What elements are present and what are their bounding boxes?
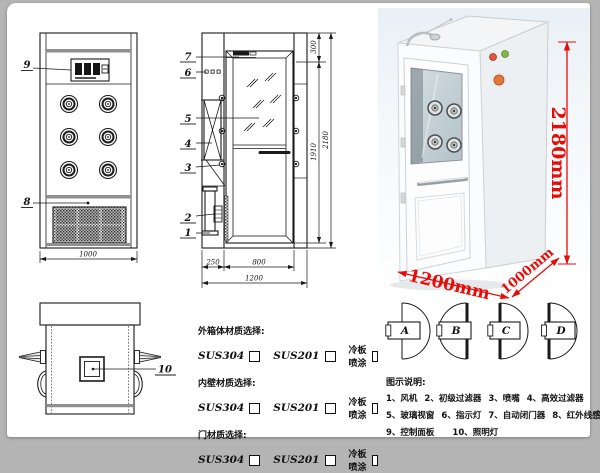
door-config-letter: A [400, 325, 409, 337]
door-hinge [401, 193, 405, 203]
material-checkbox [372, 403, 379, 414]
door-swing-right [134, 351, 161, 398]
material-option-label: SUS201 [273, 454, 319, 466]
door-glass-window [411, 68, 462, 164]
callout-grille: 8 [24, 197, 31, 208]
air-grille [53, 207, 126, 243]
legend-item: 8、红外线感应器 [552, 409, 600, 421]
material-checkbox [372, 455, 379, 466]
dim-250: 250 [205, 259, 220, 267]
callout-4: 4 [185, 139, 192, 150]
green-indicator-light [502, 51, 509, 58]
door-config-letter: D [555, 325, 566, 337]
material-option-label: SUS201 [273, 402, 319, 414]
filter-box [201, 100, 224, 160]
side-door [226, 51, 293, 243]
material-option-label: 冷板喷涂 [349, 343, 367, 369]
callout-6: 6 [185, 68, 192, 79]
dim-1000: 1000 [79, 251, 97, 259]
dim-1910: 1910 [310, 143, 318, 161]
material-option-label: 冷板喷涂 [349, 447, 367, 473]
dim-800: 800 [252, 259, 266, 267]
door-config-d: D [538, 299, 584, 363]
material-option-label: SUS304 [198, 402, 244, 414]
control-panel [71, 59, 109, 81]
material-option-label: SUS304 [198, 454, 244, 466]
door-swing-left [19, 351, 46, 398]
material-group-label: 内壁材质选择: [198, 376, 378, 389]
material-checkbox [325, 403, 336, 414]
fan-column [202, 187, 222, 235]
material-checkbox [325, 455, 336, 466]
door-config-b: B [436, 299, 482, 363]
material-option-label: SUS304 [198, 350, 244, 362]
nozzles-front [61, 96, 117, 179]
material-option-label: 冷板喷涂 [349, 395, 367, 421]
side-callout-lines [180, 57, 259, 238]
material-group-label: 门材质选择: [198, 428, 378, 441]
callout-7: 7 [185, 52, 192, 63]
legend: 图示说明: 1、风机 2、初级过滤器 3、喷嘴 4、高效过滤器 5、玻璃视窗 6… [386, 375, 596, 443]
emergency-button [494, 75, 504, 85]
photo-dim-height: 2180mm [547, 106, 569, 199]
callout-3: 3 [185, 163, 192, 174]
door-config-c: C [487, 299, 533, 363]
door-configuration-diagrams: A B C D [385, 299, 584, 363]
legend-item: 10、照明灯 [452, 426, 498, 438]
legend-item: 4、高效过滤器 [527, 392, 584, 404]
material-checkbox [249, 455, 260, 466]
legend-item: 7、自动闭门器 [488, 409, 545, 421]
product-photo: 2180mm 1200mm 1000mm [378, 8, 590, 300]
door-config-letter: C [502, 325, 511, 337]
nozzles-side [219, 95, 299, 167]
top-view-drawing [19, 303, 161, 414]
indicator-lights-side [205, 70, 220, 73]
air-shower-photo: 2180mm 1200mm 1000mm [378, 8, 590, 300]
material-group-label: 外箱体材质选择: [198, 324, 378, 337]
cabinet-body [398, 16, 548, 281]
dim-300: 300 [310, 40, 318, 54]
callout-2: 2 [184, 213, 192, 224]
glass-hatch-marks [244, 73, 281, 131]
legend-item: 5、玻璃视窗 [386, 409, 434, 421]
legend-item: 6、指示灯 [441, 409, 481, 421]
door-config-letter: B [451, 325, 461, 337]
callout-1: 1 [185, 228, 192, 239]
material-option-label: SUS201 [273, 350, 319, 362]
material-checkbox [249, 351, 260, 362]
red-indicator-light [490, 54, 497, 61]
material-checkbox [325, 351, 336, 362]
door-closer [233, 51, 249, 56]
legend-item: 9、控制面板 [386, 426, 434, 438]
dim-2180: 2180 [322, 131, 330, 150]
material-checkbox [249, 403, 260, 414]
callout-control-panel: 9 [24, 60, 31, 71]
dim-1200: 1200 [245, 275, 263, 283]
legend-item: 3、喷嘴 [488, 392, 519, 404]
callout-5: 5 [185, 114, 192, 125]
front-view-drawing [40, 33, 137, 248]
front-callout-lines [21, 68, 89, 208]
side-view-drawing [201, 33, 307, 248]
door-hinge [401, 138, 405, 147]
door-config-a: A [385, 299, 431, 363]
legend-item: 1、风机 [386, 392, 417, 404]
material-checkbox [372, 351, 379, 362]
callout-lamp: 10 [158, 365, 172, 376]
legend-item: 2、初级过滤器 [424, 392, 481, 404]
legend-title: 图示说明: [386, 375, 596, 388]
door-hinge [401, 86, 405, 95]
